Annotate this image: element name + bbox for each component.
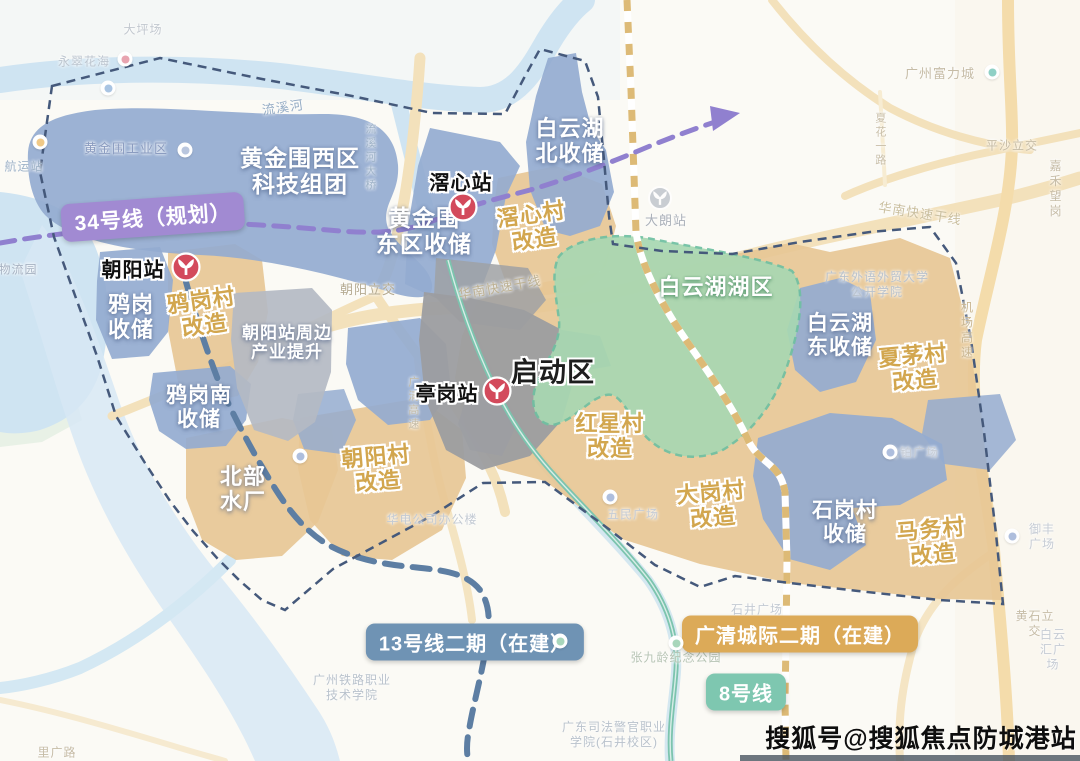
zone-label: 石岗村 收储	[812, 499, 878, 547]
map-label: 朝阳立交	[340, 282, 396, 298]
map-label: 广东司法警官职业 学院(石井校区)	[562, 720, 666, 750]
map-label: 机场高速	[959, 301, 974, 361]
zone-label: 夏茅村 改造	[877, 340, 950, 396]
map-label: 华电公司办公楼	[386, 513, 477, 528]
map-label: 流溪河大桥	[362, 123, 376, 193]
bottom-edge-strip	[740, 755, 1080, 761]
line-pill-gqcj: 广清城际二期（在建）	[682, 616, 918, 653]
zone-label: 大岗村 改造	[675, 477, 748, 533]
map-label: 广东外语外贸大学 公开学院	[825, 270, 929, 300]
poi-pin-icon	[553, 634, 568, 649]
station-label: 亭岗站	[416, 378, 479, 407]
map-label: 里广路	[37, 746, 76, 761]
poi-pin-icon	[669, 636, 684, 651]
zone-label: 黄金围西区 科技组团	[240, 145, 360, 197]
zone-label: 鸦岗南 收储	[166, 384, 232, 432]
map-label: 黄金围工业区	[84, 141, 168, 157]
map-label: 华南快速干线	[877, 199, 963, 228]
line-pill-line8: 8号线	[706, 674, 786, 711]
zone-label: 马务村 改造	[895, 514, 968, 570]
zone-label: 启动区	[511, 358, 595, 389]
map-label: 平沙立交	[986, 139, 1038, 154]
zone-label: 白云湖湖区	[658, 274, 773, 299]
zone-label: 朝阳站周边 产业提升	[242, 324, 332, 363]
map-label: 白云汇广场	[1040, 628, 1067, 673]
station-label: 朝阳站	[102, 254, 165, 283]
poi-pin-icon	[603, 490, 618, 505]
map-label: 永翠花海	[58, 55, 110, 70]
map-label: 黄石立交	[1013, 609, 1058, 639]
poi-pin-icon	[178, 143, 193, 158]
map-label: 御丰广场	[1023, 522, 1061, 552]
poi-pin-icon	[293, 449, 308, 464]
poi-pin-icon	[118, 52, 133, 67]
map-label: 五民广场	[607, 508, 659, 523]
poi-pin-icon	[1005, 529, 1020, 544]
watermark: 搜狐号@搜狐焦点防城港站	[765, 719, 1076, 755]
zone-label: 朝阳村 改造	[340, 441, 413, 497]
poi-pin-icon	[33, 135, 48, 150]
metro-station-icon	[482, 376, 513, 407]
label-layer: 大坪场永翠花海流溪河流溪河大桥黄金围工业区航运站物流园朝阳立交华南快速干线大朗站…	[0, 0, 1080, 761]
planning-map-screenshot: 大坪场永翠花海流溪河流溪河大桥黄金围工业区航运站物流园朝阳立交华南快速干线大朗站…	[0, 0, 1080, 761]
map-label: 航运站	[4, 160, 43, 175]
map-label: 流溪河	[261, 97, 305, 119]
metro-station-icon	[171, 252, 202, 283]
map-label: 物流园	[0, 263, 38, 278]
zone-label: 白云湖 北收储	[535, 116, 604, 166]
line-pill-line13: 13号线二期（在建）	[366, 624, 584, 661]
poi-pin-icon	[985, 65, 1000, 80]
map-label: 张九龄纪念公园	[630, 651, 721, 666]
line-pill-line34: 34号线（规划）	[60, 192, 246, 243]
metro-station-icon	[448, 192, 479, 223]
zone-label: 鸦岗 收储	[108, 292, 154, 342]
zone-label: 红星村 改造	[575, 411, 644, 461]
zone-label: 北部 水厂	[220, 464, 266, 514]
zone-label: 鸦岗村 改造	[165, 283, 240, 342]
map-label: 大坪场	[123, 23, 162, 38]
map-label: 广州富力城	[905, 66, 975, 82]
map-label: 华南快速干线	[457, 273, 543, 304]
map-label: 嘉禾望岗	[1044, 159, 1068, 219]
map-label: 广州铁路职业 技术学院	[313, 673, 391, 703]
map-label: 夏花一路	[872, 112, 886, 168]
zone-label: 滘心村 改造	[495, 197, 570, 256]
poi-pin-icon	[883, 445, 898, 460]
zone-label: 白云湖 东收储	[807, 312, 873, 360]
map-label: 大朗站	[645, 213, 687, 229]
poi-pin-icon	[101, 81, 116, 96]
